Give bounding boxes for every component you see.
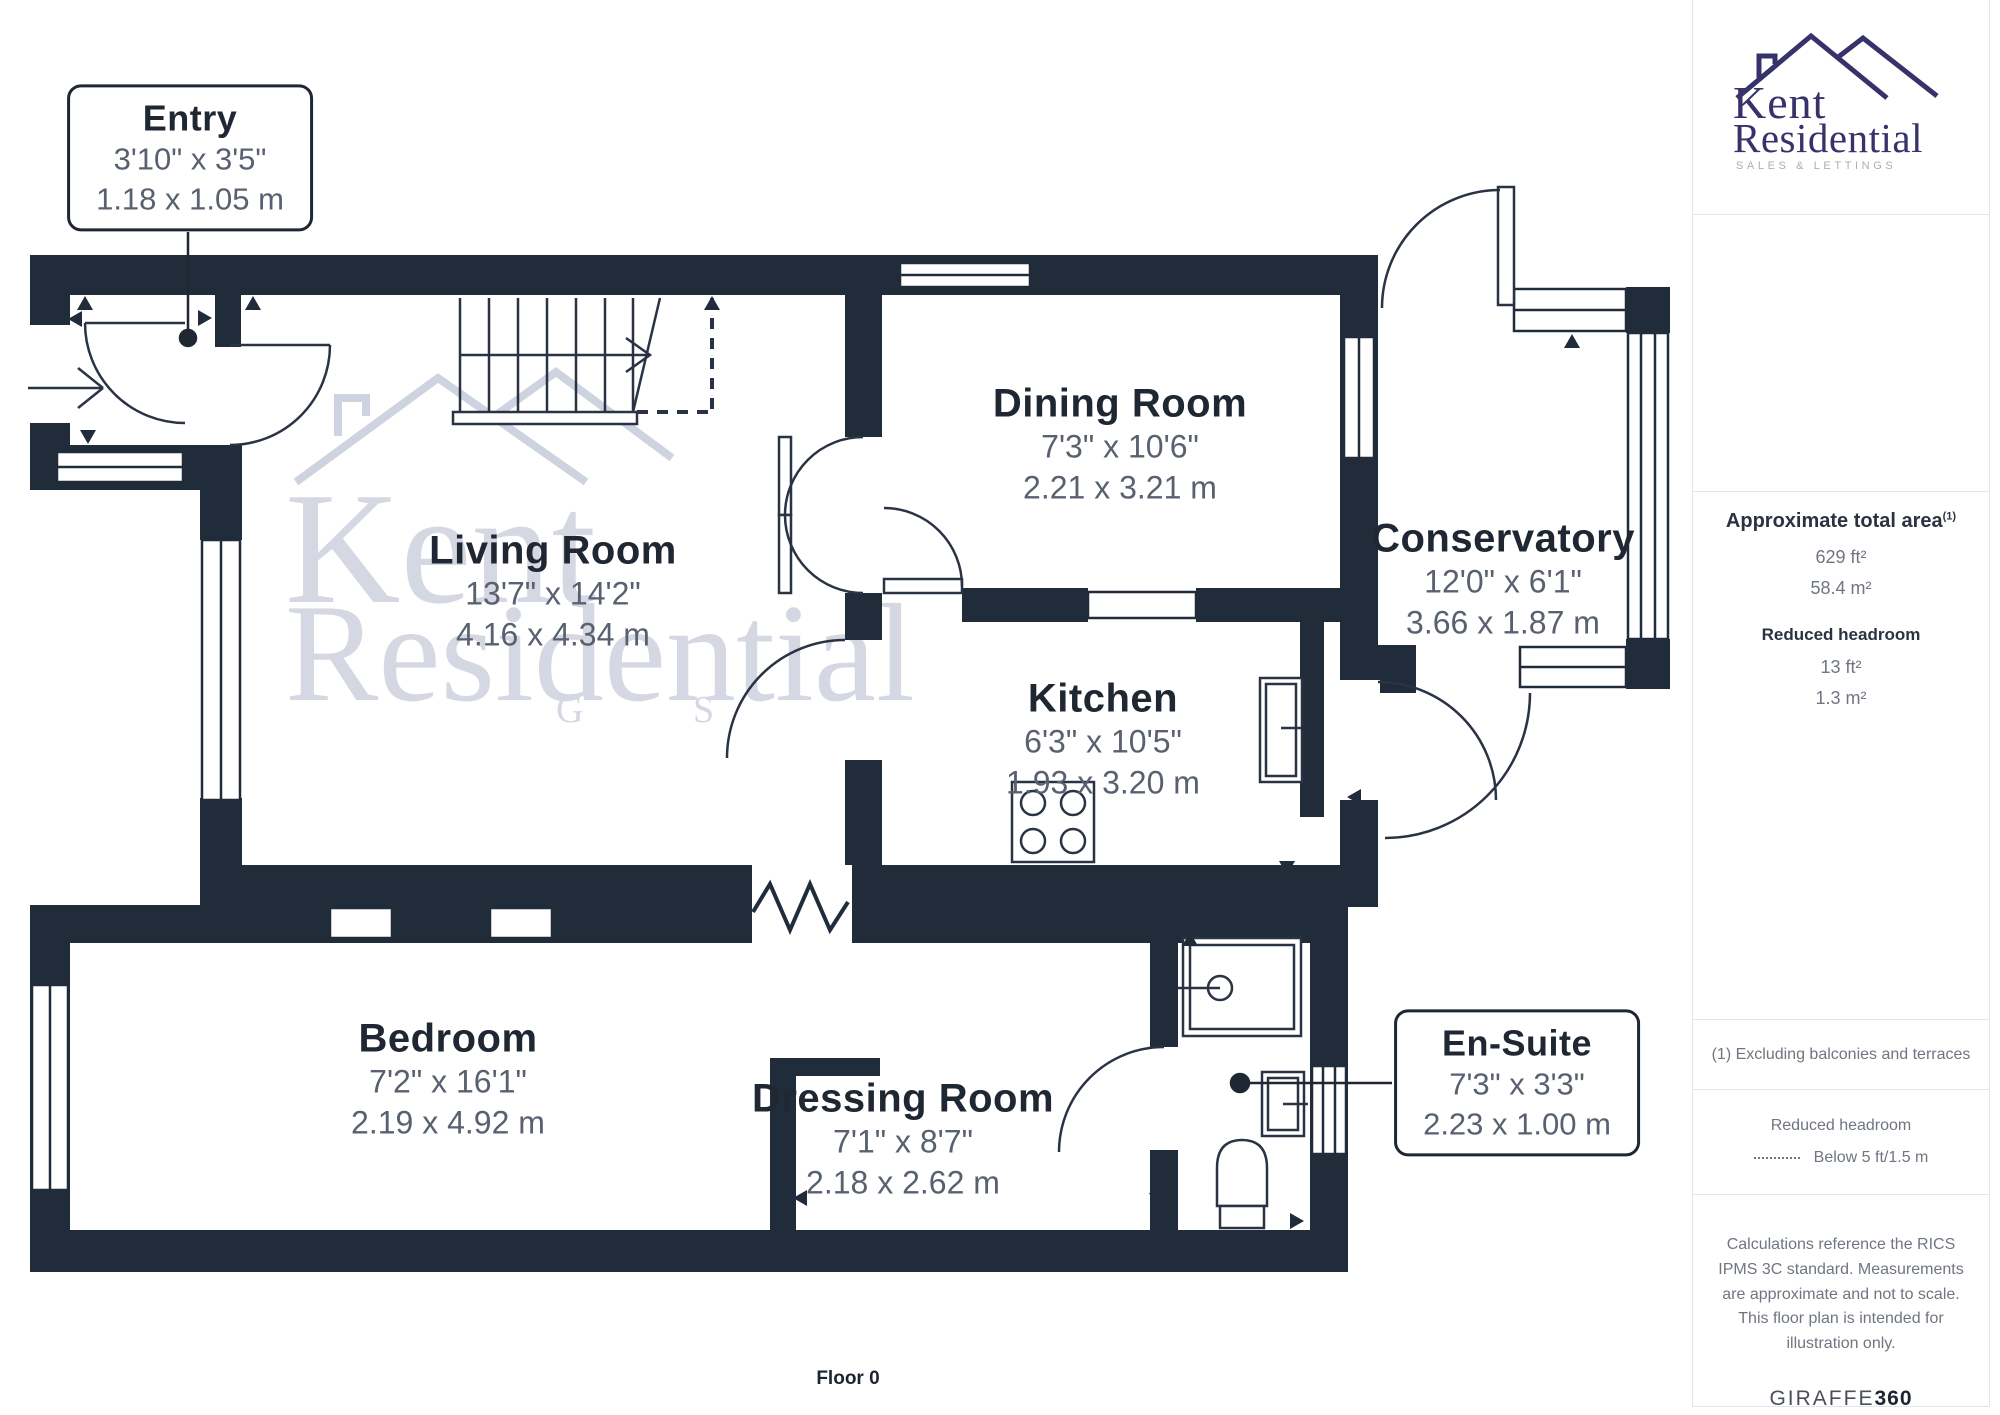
passage-opening	[752, 905, 852, 943]
wall-mid-upper-right	[852, 865, 1378, 907]
room-callout-ensuite: En-Suite 7'3" x 3'3" 2.23 x 1.00 m	[1394, 1009, 1640, 1156]
entry-living-door-arc	[230, 345, 330, 445]
wall-kitchen-top-mid	[962, 588, 1088, 622]
reduced-headroom-legend: Reduced headroom Below 5 ft/1.5 m	[1693, 1090, 1989, 1195]
room-label-dining-room: Dining Room 7'3" x 10'6" 2.21 x 3.21 m	[993, 382, 1247, 509]
area-heading: Approximate total area(1)	[1693, 510, 1989, 533]
legend-row: Below 5 ft/1.5 m	[1754, 1149, 1929, 1167]
wall-top	[30, 255, 1378, 295]
area-value-ft: 629 ft²	[1693, 547, 1989, 568]
wall-conservatory-post-a	[1626, 287, 1670, 333]
room-dims-m: 4.16 x 4.34 m	[429, 615, 677, 656]
reduced-headroom-m: 1.3 m²	[1693, 688, 1989, 709]
room-name: En-Suite	[1423, 1022, 1611, 1064]
brand-logo: GIRAFFE360	[1709, 1383, 1973, 1415]
kitchen-sink	[1260, 678, 1302, 782]
area-footnote-marker: (1)	[1943, 510, 1956, 522]
kitchen-dining-door-leaf	[884, 579, 962, 593]
wall-kitchen-top-right	[1196, 588, 1340, 622]
area-value-m: 58.4 m²	[1693, 578, 1989, 599]
toilet	[1217, 1140, 1267, 1228]
room-dims-m: 2.23 x 1.00 m	[1423, 1104, 1611, 1144]
room-name: Entry	[96, 97, 284, 139]
window-bedroom-north-b	[490, 908, 552, 938]
door-arrow-icon	[77, 296, 93, 310]
area-summary: Approximate total area(1) 629 ft² 58.4 m…	[1693, 492, 1989, 1020]
garden-door-arc	[1385, 693, 1530, 838]
wall-dining-west-bottom	[845, 760, 882, 865]
wall-ensuite-left-top	[1150, 905, 1178, 1047]
room-name: Dressing Room	[752, 1077, 1054, 1122]
conservatory-door-arc	[1382, 190, 1500, 308]
room-dims-m: 1.93 x 3.20 m	[1006, 763, 1200, 804]
disclaimer-text: Calculations reference the RICS IPMS 3C …	[1709, 1233, 1973, 1357]
room-label-conservatory: Conservatory 12'0" x 6'1" 3.66 x 1.87 m	[1371, 517, 1635, 644]
wall-kitchen-stub	[1300, 622, 1324, 817]
wall-living-west-top	[200, 445, 242, 540]
wall-mid-upper-left	[200, 865, 752, 907]
door-arrow-icon	[704, 296, 720, 310]
wall-dressing-horizontal	[770, 1058, 880, 1076]
stairs	[453, 298, 712, 424]
kitchen-dining-door-arc	[884, 508, 962, 586]
shower	[1178, 938, 1301, 1036]
info-sidebar: Kent Residential SALES & LETTINGS Approx…	[1692, 0, 1990, 1407]
area-heading-text: Approximate total area	[1726, 510, 1943, 532]
kitchen-conservatory-door-arc	[1378, 682, 1496, 800]
floorplan-page: Kent Residential G S	[0, 0, 2000, 1415]
room-label-kitchen: Kitchen 6'3" x 10'5" 1.93 x 3.20 m	[1006, 677, 1200, 804]
room-dims-ft: 13'7" x 14'2"	[429, 574, 677, 615]
room-dims-ft: 7'3" x 3'3"	[1423, 1064, 1611, 1104]
reduced-headroom-ft: 13 ft²	[1693, 657, 1989, 678]
floor-label: Floor 0	[748, 1368, 948, 1390]
room-dims-ft: 7'3" x 10'6"	[993, 427, 1247, 468]
room-dims-ft: 7'1" x 8'7"	[752, 1122, 1054, 1163]
entry-direction-arrow-icon	[28, 368, 103, 408]
wall-conservatory-post-b	[1626, 639, 1670, 689]
brand-suffix: 360	[1874, 1387, 1912, 1410]
room-name: Dining Room	[993, 382, 1247, 427]
wall-ensuite-left-bottom	[1150, 1150, 1178, 1272]
door-arrow-icon	[80, 430, 96, 444]
disclaimer-section: Calculations reference the RICS IPMS 3C …	[1693, 1195, 1989, 1407]
ensuite-door-arc	[1059, 1047, 1164, 1152]
french-door-arc-top	[785, 437, 863, 515]
room-name: Kitchen	[1006, 677, 1200, 722]
door-arrow-icon	[1564, 334, 1580, 348]
bathroom-sink	[1262, 1072, 1308, 1136]
room-dims-ft: 7'2" x 16'1"	[351, 1062, 545, 1103]
logo-line2: Residential	[1733, 114, 1923, 162]
wall-dining-west-top	[845, 295, 882, 437]
window-bedroom-north-a	[330, 908, 392, 938]
room-dims-m: 3.66 x 1.87 m	[1371, 603, 1635, 644]
door-arrow-icon	[1290, 1213, 1304, 1229]
brand-name: GIRAFFE	[1769, 1387, 1874, 1410]
area-footnote: (1) Excluding balconies and terraces	[1693, 1020, 1989, 1090]
room-name: Bedroom	[351, 1017, 545, 1062]
stairs-base	[453, 412, 637, 424]
wall-dining-west-mid	[845, 593, 882, 640]
room-dims-ft: 12'0" x 6'1"	[1371, 562, 1635, 603]
ensuite-leader-dot	[1231, 1074, 1249, 1092]
logo-tagline: SALES & LETTINGS	[1736, 160, 1896, 172]
wall-entry-left-top	[30, 255, 70, 325]
room-label-living-room: Living Room 13'7" x 14'2" 4.16 x 4.34 m	[429, 529, 677, 656]
window-ensuite-east	[1312, 1066, 1346, 1154]
room-dims-m: 2.19 x 4.92 m	[351, 1103, 545, 1144]
room-dims-m: 1.18 x 1.05 m	[96, 179, 284, 219]
room-label-dressing-room: Dressing Room 7'1" x 8'7" 2.18 x 2.62 m	[752, 1077, 1054, 1204]
conservatory-door-leaf	[1498, 187, 1514, 305]
agency-logo: Kent Residential SALES & LETTINGS	[1693, 0, 1989, 215]
room-dims-ft: 3'10" x 3'5"	[96, 139, 284, 179]
room-name: Living Room	[429, 529, 677, 574]
room-dims-m: 2.21 x 3.21 m	[993, 468, 1247, 509]
kitchen-hatch	[1088, 592, 1196, 618]
dotted-line-icon	[1754, 1157, 1800, 1159]
kitchen-conservatory-opening	[1338, 680, 1380, 800]
front-door-arc	[85, 323, 185, 423]
room-dims-ft: 6'3" x 10'5"	[1006, 722, 1200, 763]
wall-entry-stub	[215, 295, 241, 347]
room-name: Conservatory	[1371, 517, 1635, 562]
reduced-headroom-heading: Reduced headroom	[1693, 625, 1989, 645]
door-arrow-icon	[245, 296, 261, 310]
sidebar-spacer	[1693, 215, 1989, 492]
legend-item: Below 5 ft/1.5 m	[1814, 1149, 1929, 1167]
room-dims-m: 2.18 x 2.62 m	[752, 1163, 1054, 1204]
room-callout-entry: Entry 3'10" x 3'5" 1.18 x 1.05 m	[67, 84, 313, 231]
door-arrow-icon	[198, 310, 212, 326]
door-arrow-icon	[68, 311, 82, 327]
legend-title: Reduced headroom	[1771, 1117, 1912, 1135]
room-label-bedroom: Bedroom 7'2" x 16'1" 2.19 x 4.92 m	[351, 1017, 545, 1144]
entry-leader-dot	[180, 330, 196, 346]
